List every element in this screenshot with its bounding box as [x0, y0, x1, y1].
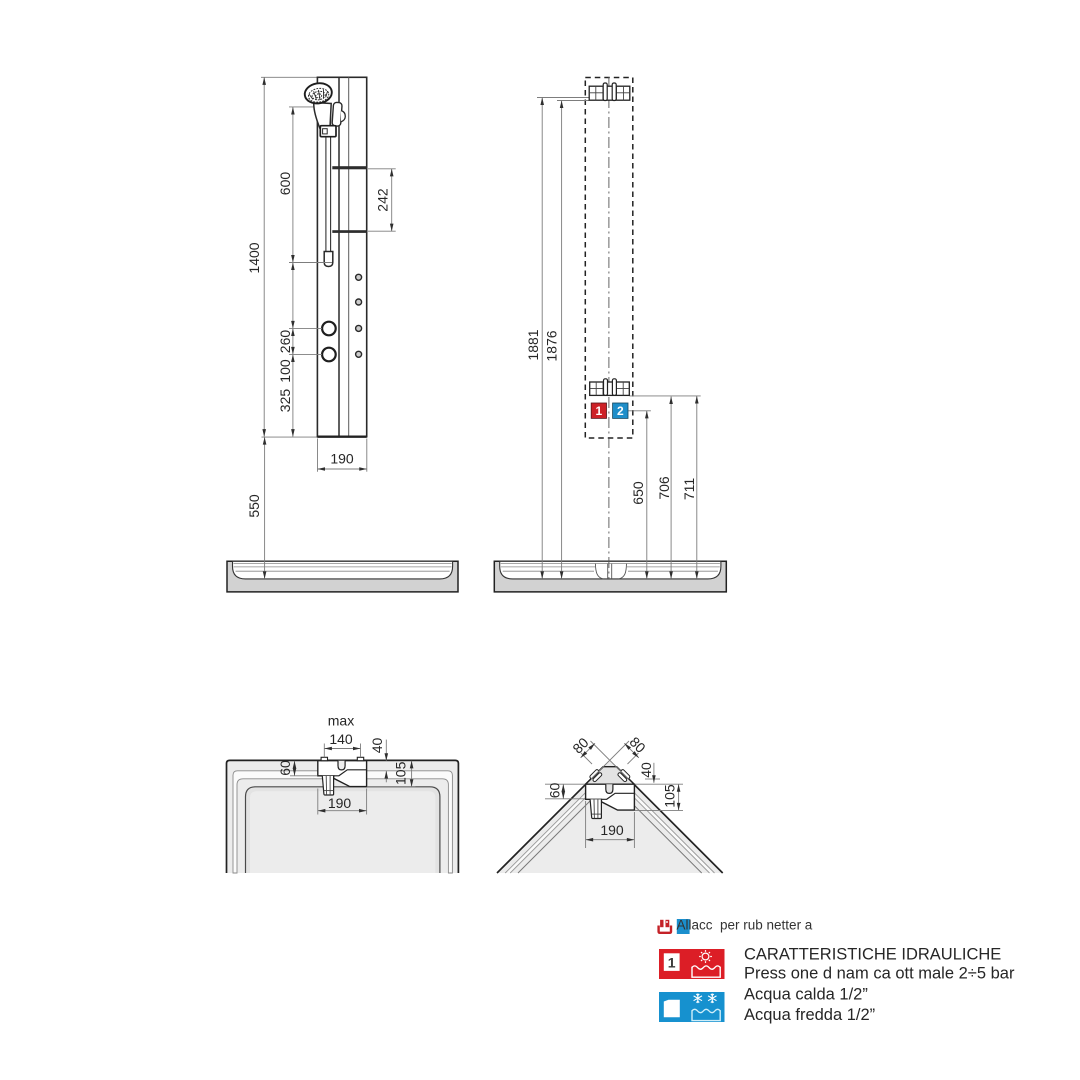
svg-text:60: 60 — [277, 760, 293, 776]
svg-text:325: 325 — [277, 389, 293, 413]
svg-text:2: 2 — [617, 404, 624, 418]
svg-text:Acqua fredda 1/2”: Acqua fredda 1/2” — [744, 1006, 875, 1024]
svg-text:260: 260 — [277, 330, 293, 354]
svg-text:650: 650 — [630, 481, 646, 505]
svg-text:Acqua calda 1/2”: Acqua calda 1/2” — [744, 986, 868, 1004]
svg-text:max: max — [328, 713, 354, 729]
svg-text:CARATTERISTICHE IDRAULICHE: CARATTERISTICHE IDRAULICHE — [744, 946, 1001, 964]
svg-text:60: 60 — [547, 783, 563, 799]
svg-text:600: 600 — [277, 172, 293, 196]
svg-text:140: 140 — [329, 731, 353, 747]
svg-text:40: 40 — [638, 762, 654, 778]
svg-text:80: 80 — [569, 734, 591, 756]
svg-text:706: 706 — [656, 476, 672, 500]
svg-text:1400: 1400 — [246, 242, 262, 273]
svg-text:40: 40 — [369, 738, 385, 754]
svg-text:190: 190 — [330, 451, 354, 467]
svg-text:1: 1 — [595, 404, 602, 418]
svg-text:711: 711 — [681, 478, 697, 501]
svg-text:242: 242 — [374, 188, 390, 212]
svg-text:105: 105 — [393, 761, 409, 785]
svg-text:Press one d nam ca ott male 2÷: Press one d nam ca ott male 2÷5 bar — [744, 965, 1015, 983]
svg-text:550: 550 — [246, 494, 262, 518]
svg-text:190: 190 — [600, 822, 624, 838]
svg-text:1: 1 — [668, 955, 676, 971]
svg-text:105: 105 — [662, 784, 678, 808]
svg-text:80: 80 — [627, 734, 649, 756]
svg-text:190: 190 — [328, 795, 352, 811]
svg-text:Allacc per rub netter a: Allacc per rub netter a — [677, 918, 813, 933]
svg-text:1881: 1881 — [525, 329, 541, 360]
svg-text:100: 100 — [277, 359, 293, 383]
svg-text:1876: 1876 — [544, 330, 560, 361]
